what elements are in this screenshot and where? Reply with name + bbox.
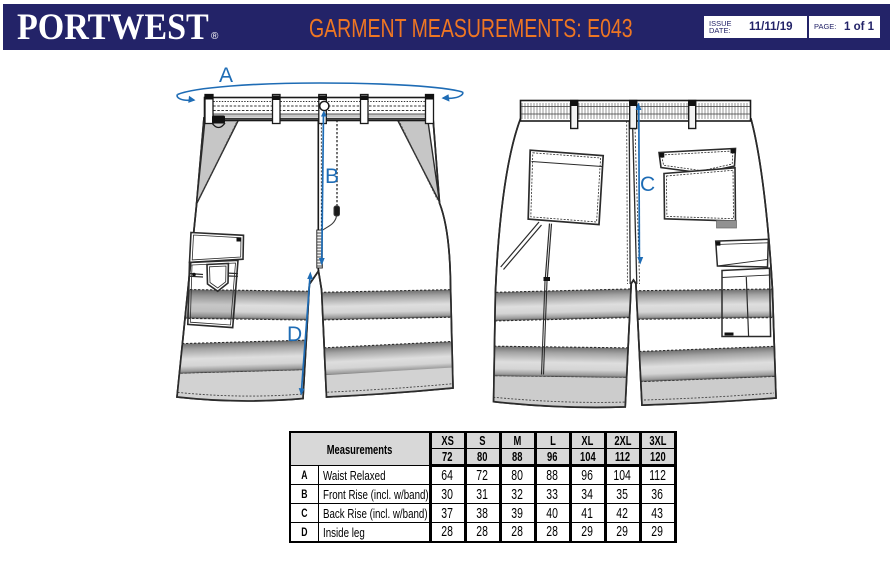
svg-text:C: C — [640, 173, 655, 196]
svg-text:A: A — [219, 64, 233, 87]
svg-text:B: B — [325, 165, 339, 188]
svg-text:D: D — [287, 323, 302, 346]
